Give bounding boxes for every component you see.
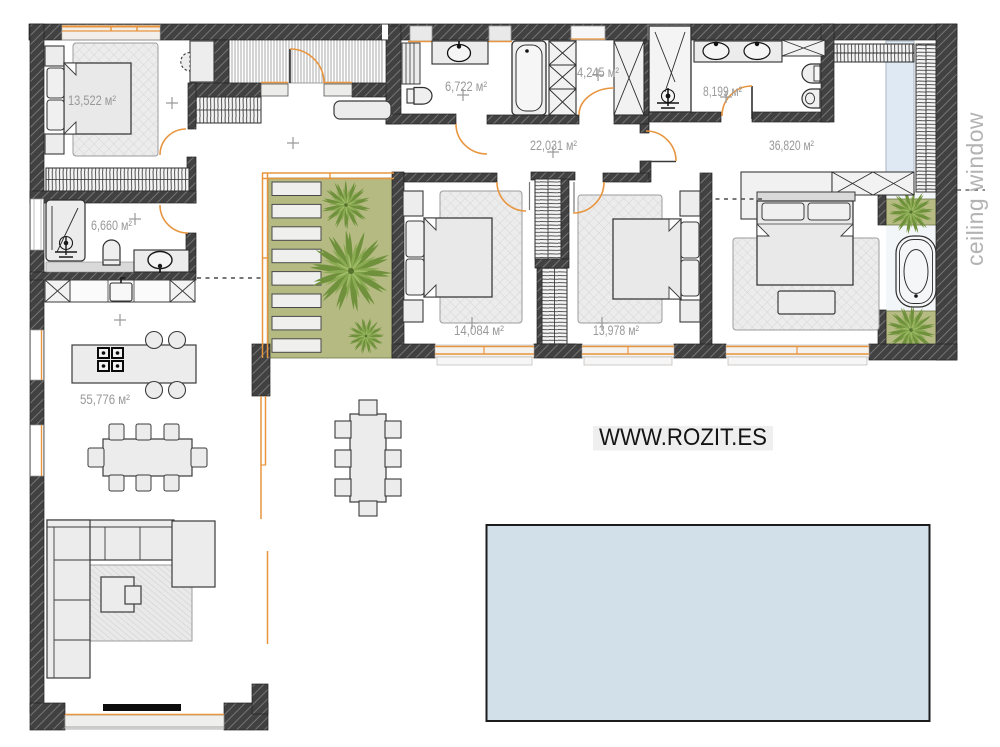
svg-text:22,031 м²: 22,031 м² [530,138,577,153]
svg-text:6,660 м²: 6,660 м² [91,218,132,233]
svg-text:4,245 м²: 4,245 м² [577,65,619,80]
svg-text:WWW.ROZIT.ES: WWW.ROZIT.ES [599,424,767,451]
svg-text:13,522 м²: 13,522 м² [68,93,116,108]
svg-text:ceiling window: ceiling window [962,112,988,266]
svg-text:6,722 м²: 6,722 м² [445,79,487,94]
svg-text:14,084 м²: 14,084 м² [454,323,504,338]
svg-text:55,776 м²: 55,776 м² [80,392,130,407]
svg-text:13,978 м²: 13,978 м² [593,323,639,338]
svg-text:36,820 м²: 36,820 м² [769,138,814,153]
svg-text:8,199 м²: 8,199 м² [703,84,742,99]
